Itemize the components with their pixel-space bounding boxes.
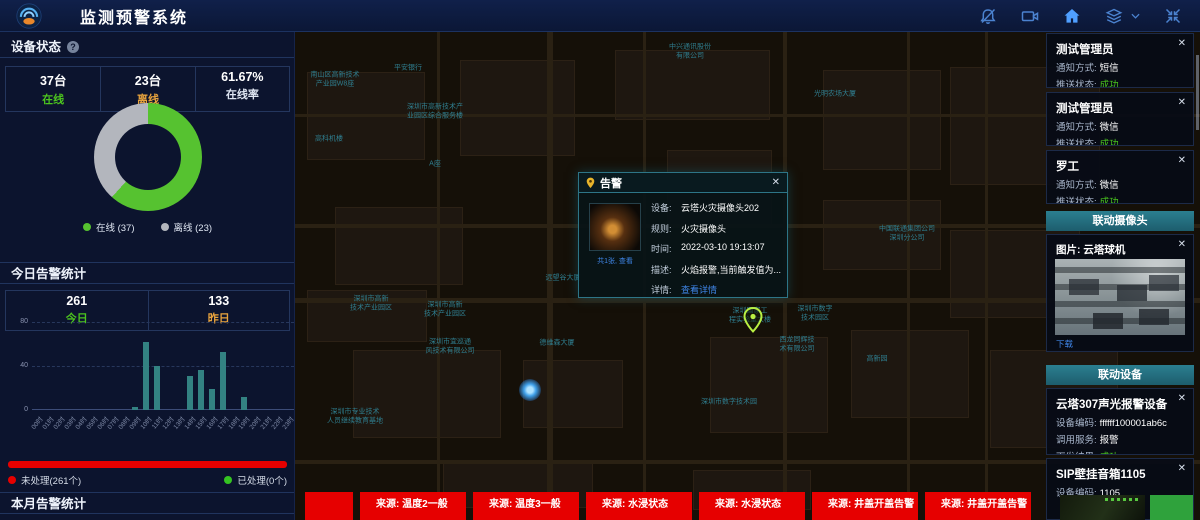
home-icon[interactable]	[1063, 7, 1081, 25]
notification-recipient: 测试管理员	[1056, 41, 1184, 57]
header-icon-bar	[979, 0, 1182, 32]
page-title: 监测预警系统	[80, 4, 188, 28]
device-stat-cell: 37台在线	[6, 67, 100, 111]
donut-legend: 在线 (37)离线 (23)	[0, 220, 295, 234]
bar	[220, 352, 226, 410]
map-label: 高新园	[867, 354, 888, 363]
today-alert-bar-chart: 0408000时01时02时03时04时05时06时07时08时09时10时11…	[8, 322, 290, 448]
device-status-title: 设备状态?	[0, 36, 295, 58]
popup-detail-row: 详情:查看详情	[651, 283, 783, 296]
card-row: 通知方式:短信	[1056, 60, 1184, 74]
bar	[132, 407, 138, 410]
notification-recipient: 测试管理员	[1056, 100, 1184, 116]
map-label: 西龙同辉技 术有限公司	[780, 336, 815, 355]
camera-snapshot-image[interactable]	[1055, 259, 1185, 335]
map-label: 高科机楼	[315, 134, 343, 143]
card-row: 调用服务:报警	[1056, 432, 1184, 446]
popup-detail-value: 2022-03-10 19:13:07	[681, 242, 765, 255]
month-alerts-title: 本月告警统计	[0, 492, 295, 514]
help-icon[interactable]: ?	[67, 41, 79, 53]
bar	[209, 389, 215, 410]
map-label: 光明农场大厦	[814, 89, 856, 98]
bottom-alert-item[interactable]	[305, 492, 353, 520]
alert-popup: 告警 ✕ 共1张, 查看 设备:云塔火灾摄像头202规则:火灾摄像头时间:202…	[578, 172, 788, 298]
y-axis-tick: 80	[8, 318, 28, 325]
card-row: 设备编码:ffffff100001ab6c	[1056, 415, 1184, 429]
map-road	[985, 32, 988, 520]
map-label: 深圳市高新 技术产业园区	[350, 295, 392, 314]
card-row: 推送状态:成功	[1056, 136, 1184, 146]
map-label: 深圳市宜巡通 风技术有限公司	[426, 338, 475, 357]
map-pin-icon[interactable]	[743, 307, 763, 333]
linked-camera-header: 联动摄像头	[1046, 211, 1194, 231]
popup-detail-row: 时间:2022-03-10 19:13:07	[651, 242, 783, 255]
bottom-alert-item[interactable]: 来源: 水浸状态	[586, 492, 692, 520]
handled-dot	[224, 476, 232, 484]
map-label: 深圳市数字 技术园区	[798, 305, 833, 324]
map-building	[460, 60, 575, 156]
device-status-donut	[94, 103, 202, 211]
map-label: 德维森大厦	[540, 338, 575, 347]
bottom-alert-item[interactable]: 来源: 温度2一般	[360, 492, 466, 520]
close-icon[interactable]: ✕	[772, 178, 780, 188]
y-axis-tick: 40	[8, 362, 28, 369]
alert-popup-details: 设备:云塔火灾摄像头202规则:火灾摄像头时间:2022-03-10 19:13…	[651, 201, 783, 304]
app-logo-icon	[16, 3, 42, 29]
card-row: 通知方式:微信	[1056, 177, 1184, 191]
card-row: 推送状态:成功	[1056, 194, 1184, 204]
top-header: 监测预警系统	[0, 0, 1200, 32]
notification-recipient: 罗工	[1056, 158, 1184, 174]
close-icon[interactable]: ✕	[1178, 464, 1186, 474]
legend-item: 在线 (37)	[83, 220, 135, 234]
card-row: 推送状态:成功	[1056, 77, 1184, 88]
device-stat-cell: 61.67%在线率	[195, 67, 289, 111]
popup-detail-row: 规则:火灾摄像头	[651, 222, 783, 235]
map-building	[335, 207, 463, 285]
map-label: A座	[429, 159, 441, 168]
unhandled-label: 未处理(261个)	[21, 473, 81, 487]
map-label: 深圳市高新 技术产业园区	[424, 301, 466, 320]
popup-detail-row: 设备:云塔火灾摄像头202	[651, 201, 783, 214]
popup-detail-value: 云塔火灾摄像头202	[681, 201, 759, 214]
alert-thumbnail-camera[interactable]	[1060, 495, 1145, 520]
bottom-alert-item[interactable]: 来源: 水浸状态	[699, 492, 805, 520]
close-icon[interactable]: ✕	[1178, 240, 1186, 250]
alert-popup-titlebar: 告警 ✕	[579, 173, 787, 193]
close-icon[interactable]: ✕	[1178, 394, 1186, 404]
handled-label: 已处理(0个)	[237, 473, 287, 487]
map-label: 中兴通讯股份 有限公司	[669, 43, 711, 62]
layers-icon[interactable]	[1105, 7, 1123, 25]
view-details-link[interactable]: 查看详情	[681, 283, 717, 296]
alert-popup-title: 告警	[600, 175, 767, 191]
y-axis-tick: 0	[8, 406, 28, 413]
alert-snapshot-image[interactable]	[589, 203, 641, 251]
card-row: 下发结果:成功	[1056, 449, 1184, 455]
monitoring-dashboard: 监测预警系统	[0, 0, 1200, 520]
chevron-down-icon[interactable]	[1131, 12, 1140, 21]
linked-device-name: 云塔307声光报警设备	[1056, 396, 1184, 412]
close-icon[interactable]: ✕	[1178, 156, 1186, 166]
linked-device-name: SIP壁挂音箱1105	[1056, 466, 1184, 482]
alert-thumbnail-green[interactable]	[1150, 495, 1193, 520]
alert-progress-bar	[8, 461, 287, 468]
map-label: 深圳市数字技术园	[701, 397, 757, 406]
info-card: 测试管理员✕通知方式:短信推送状态:成功	[1046, 33, 1194, 88]
download-link[interactable]: 下载	[1056, 338, 1073, 350]
info-card: 云塔307声光报警设备✕设备编码:ffffff100001ab6c调用服务:报警…	[1046, 388, 1194, 455]
bottom-alert-item[interactable]: 来源: 井盖开盖告警	[925, 492, 1031, 520]
close-icon[interactable]: ✕	[1178, 39, 1186, 49]
popup-detail-value: 火灾摄像头	[681, 222, 726, 235]
bottom-alert-item[interactable]: 来源: 温度3一般	[473, 492, 579, 520]
alert-device-marker[interactable]	[519, 379, 541, 401]
unhandled-dot	[8, 476, 16, 484]
bar	[241, 397, 247, 410]
popup-detail-value: 火焰报警,当前触发值为...	[681, 263, 781, 276]
linked-device-header: 联动设备	[1046, 365, 1194, 385]
map-building	[823, 70, 941, 170]
linked-camera-card: 图片: 云塔球机 ✕ 下载	[1046, 234, 1194, 352]
map-label: 平安银行	[394, 63, 422, 72]
bottom-alert-item[interactable]: 来源: 井盖开盖告警	[812, 492, 918, 520]
camera-image-title: 图片: 云塔球机	[1056, 242, 1184, 257]
map-building	[851, 330, 969, 418]
legend-item: 离线 (23)	[161, 220, 213, 234]
info-card: 罗工✕通知方式:微信推送状态:成功	[1046, 150, 1194, 204]
map-road	[907, 32, 910, 520]
info-card: 测试管理员✕通知方式:微信推送状态:成功	[1046, 92, 1194, 146]
map-label: 远望谷大厦	[546, 273, 581, 282]
collapse-icon[interactable]	[1164, 7, 1182, 25]
bell-muted-icon[interactable]	[979, 7, 997, 25]
alert-snapshot-link[interactable]: 共1张, 查看	[581, 256, 649, 266]
alert-progress-legend: 未处理(261个) 已处理(0个)	[8, 473, 287, 487]
map-label: 深圳市高新技术产 业园区综合服务楼	[407, 103, 463, 122]
left-stats-panel: 设备状态? 37台在线23台离线61.67%在线率 在线 (37)离线 (23)…	[0, 32, 295, 520]
bar	[187, 376, 193, 410]
map-label: 中国联通集团公司 深圳分公司	[879, 225, 935, 244]
map-label: 南山区高新技术 产业园W8座	[311, 71, 360, 90]
today-alerts-title: 今日告警统计	[0, 262, 295, 284]
bar	[198, 370, 204, 410]
bar	[154, 366, 160, 410]
map-label: 深圳市专业技术 人员继续教育基地	[327, 408, 383, 427]
bar	[143, 342, 149, 410]
close-icon[interactable]: ✕	[1178, 98, 1186, 108]
card-row: 通知方式:微信	[1056, 119, 1184, 133]
scrollbar-thumb[interactable]	[1196, 55, 1199, 130]
popup-detail-row: 描述:火焰报警,当前触发值为...	[651, 263, 783, 276]
video-camera-icon[interactable]	[1021, 7, 1039, 25]
pin-icon	[586, 177, 595, 189]
